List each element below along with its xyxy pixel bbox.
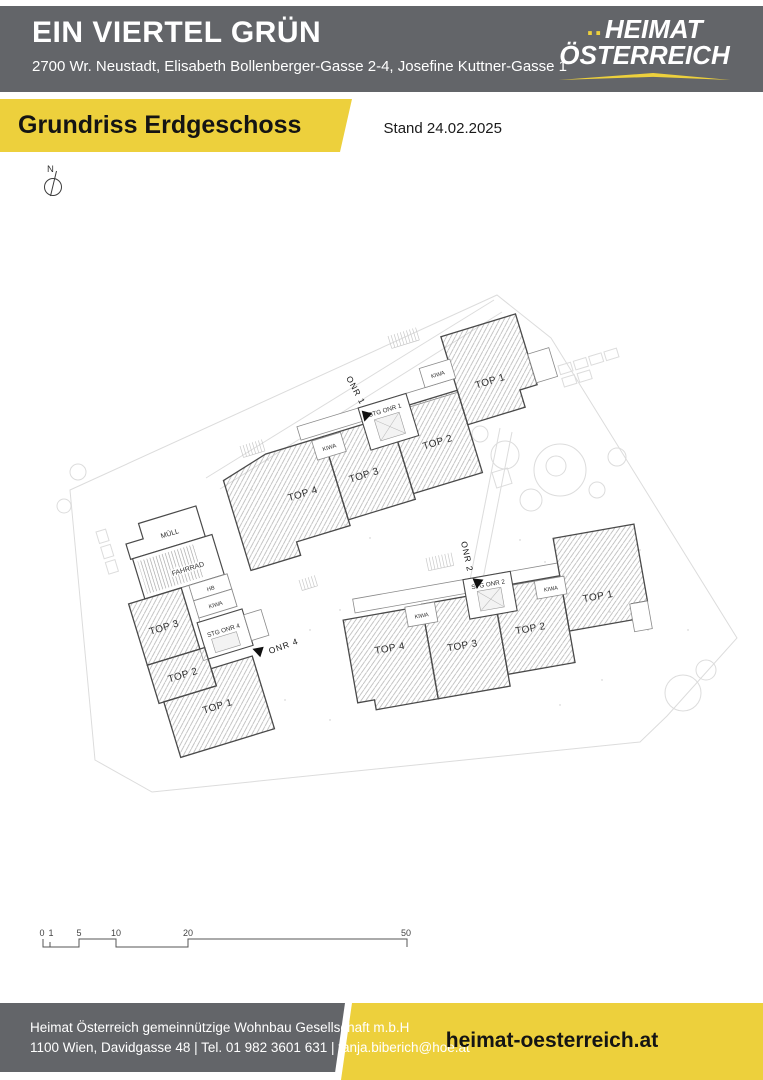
stand-date: Stand 24.02.2025: [261, 120, 502, 137]
scale-10: 10: [111, 928, 121, 938]
logo-swoosh: [559, 73, 731, 80]
scale-bar: 0 1 5 10 20 50: [39, 928, 411, 947]
scale-20: 20: [183, 928, 193, 938]
scale-50: 50: [401, 928, 411, 938]
label-onr4-entry: ONR 4: [267, 636, 300, 656]
annex-onr2: [630, 601, 653, 632]
floor-plan-drawing: N: [0, 160, 763, 960]
heimat-oesterreich-logo: ..HEIMAT ÖSTERREICH: [552, 16, 737, 80]
building-onr1: TOP 4 TOP 3 TOP 2 TOP 1 STG ONR 1 KIWA K…: [202, 307, 586, 570]
logo-line-2: ÖSTERREICH: [552, 42, 737, 68]
north-arrow: N: [45, 164, 62, 196]
project-address: 2700 Wr. Neustadt, Elisabeth Bollenberge…: [32, 58, 567, 75]
north-label: N: [47, 164, 54, 175]
label-onr2-entry: ONR 2: [459, 540, 475, 572]
logo-line-1: ..HEIMAT: [552, 16, 737, 42]
logo-umlaut-dots: ..: [586, 11, 602, 41]
scale-0: 0: [39, 928, 44, 938]
page-title: Grundriss Erdgeschoss: [18, 111, 301, 140]
project-title: EIN VIERTEL GRÜN: [32, 16, 321, 50]
scale-1: 1: [48, 928, 53, 938]
footer-website: heimat-oesterreich.at: [352, 1029, 752, 1053]
building-onr2: TOP 4 TOP 3 TOP 2 TOP 1 STG ONR 2 KIWA K…: [336, 524, 658, 713]
scale-5: 5: [76, 928, 81, 938]
